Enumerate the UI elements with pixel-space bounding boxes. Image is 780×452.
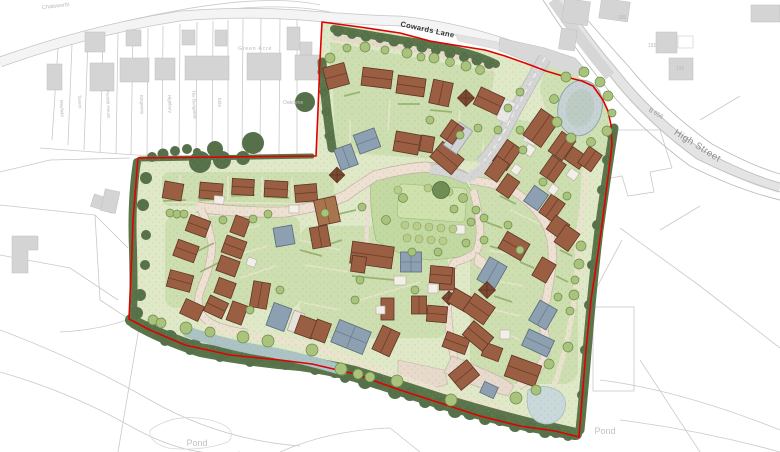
svg-text:Mayfield: Mayfield xyxy=(59,100,65,117)
svg-text:Tavern: Tavern xyxy=(77,95,83,109)
svg-text:Oakdene: Oakdene xyxy=(283,100,304,106)
svg-text:Elda: Elda xyxy=(217,98,222,108)
svg-text:193: 193 xyxy=(676,66,685,72)
svg-text:Highbury: Highbury xyxy=(167,95,173,114)
svg-text:Kingsway: Kingsway xyxy=(139,95,145,115)
svg-text:Green Acre: Green Acre xyxy=(238,46,272,52)
svg-text:Pond: Pond xyxy=(186,438,207,448)
svg-text:183: 183 xyxy=(618,15,627,21)
svg-text:Pond: Pond xyxy=(594,426,615,436)
svg-text:191: 191 xyxy=(648,43,657,49)
